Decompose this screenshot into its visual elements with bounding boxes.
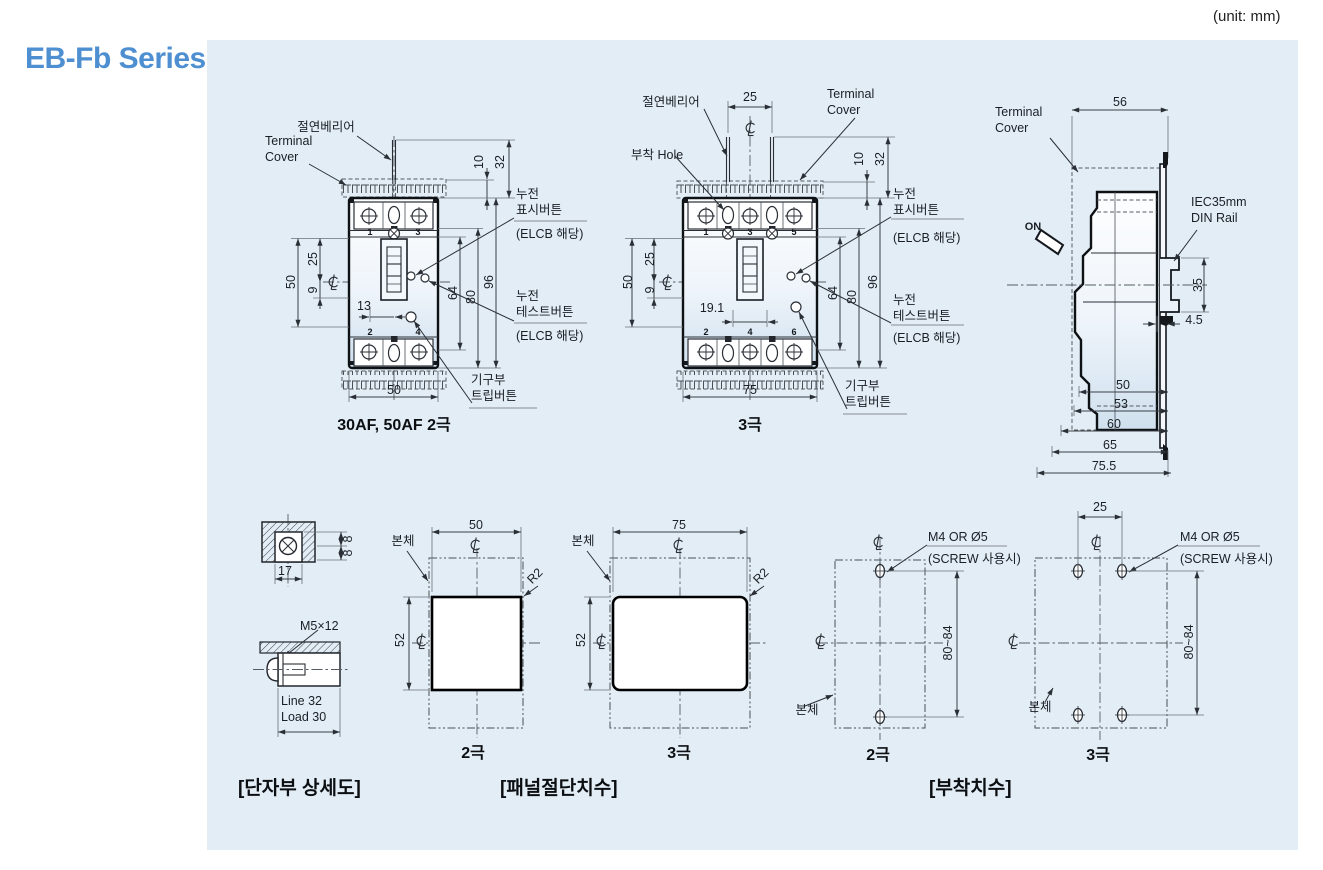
dim-label: 8: [340, 536, 356, 543]
dim-label: 80: [844, 290, 860, 304]
dim-label: 10: [851, 152, 867, 166]
dim-label: 50: [1116, 377, 1130, 393]
dim-label: 56: [1113, 94, 1127, 110]
dim-label: 10: [471, 155, 487, 169]
leakage-indicator-label: 누전 표시버튼: [893, 186, 939, 218]
dim-label: 9: [642, 287, 658, 294]
page: EB-Fb Series (unit: mm): [0, 0, 1323, 870]
panel-cutout-3pole-drawing: [584, 527, 768, 738]
body-label: 본체: [1028, 699, 1051, 715]
dim-label: 32: [872, 152, 888, 166]
elcb-note: (ELCB 해당): [516, 226, 583, 242]
elcb-note: (ELCB 해당): [893, 230, 960, 246]
body-label: 본체: [795, 702, 818, 718]
unit-label: (unit: mm): [1213, 8, 1281, 25]
terminal-cover-label: Terminal Cover: [265, 133, 312, 165]
dim-label: 80~84: [1181, 624, 1197, 659]
dim-label: 50: [283, 275, 299, 289]
pole-number: 5: [791, 227, 796, 237]
dim-label: 64: [445, 286, 461, 300]
din-rail-label: IEC35mm DIN Rail: [1191, 194, 1247, 226]
caption-mounting-3pole: 3극: [1086, 746, 1110, 766]
dim-label: 50: [469, 517, 483, 533]
trip-button-label: 기구부 트립버튼: [471, 372, 517, 404]
pole-number: 3: [747, 227, 752, 237]
screw-note-label: (SCREW 사용시): [928, 551, 1021, 567]
caption-3pole-front: 3극: [738, 416, 762, 436]
dim-label: 4.5: [1185, 312, 1202, 328]
screw-note-label: (SCREW 사용시): [1180, 551, 1273, 567]
front-view-2pole-drawing: [291, 136, 587, 408]
dim-label: 64: [825, 286, 841, 300]
dim-label: 80~84: [940, 625, 956, 660]
elcb-note: (ELCB 해당): [893, 330, 960, 346]
dim-label: 25: [305, 252, 321, 266]
dim-label: 13: [357, 298, 371, 314]
dim-label: 25: [743, 89, 757, 105]
pole-number: 2: [703, 327, 708, 337]
dim-label: 50: [620, 275, 636, 289]
terminal-cover-label: Terminal Cover: [995, 104, 1042, 136]
page-title: EB-Fb Series: [25, 42, 206, 76]
leakage-test-label: 누전 테스트버튼: [893, 292, 951, 324]
dim-label: 17: [278, 563, 292, 579]
leakage-indicator-label: 누전 표시버튼: [516, 186, 562, 218]
dim-label: 25: [1093, 499, 1107, 515]
dim-label: 96: [865, 275, 881, 289]
dim-label: 53: [1114, 396, 1128, 412]
dim-label: 32: [492, 155, 508, 169]
on-label: ON: [1025, 220, 1042, 234]
screw-spec-label: M4 OR Ø5: [928, 529, 988, 545]
dim-label: 60: [1107, 416, 1121, 432]
caption-mounting-2pole: 2극: [866, 746, 890, 766]
section-caption-terminal-detail: [단자부 상세도]: [238, 777, 361, 801]
body-label: 본체: [391, 533, 414, 549]
panel-cutout-2pole-drawing: [403, 527, 540, 738]
trip-button-label: 기구부 트립버튼: [845, 378, 891, 410]
dim-label: 8: [340, 550, 356, 557]
wire-capacity-label: Line 32 Load 30: [281, 693, 326, 725]
pole-number: 1: [703, 227, 708, 237]
drawing-panel: 절연베리어 Terminal Cover 10 32 누전 표시버튼 (ELCB…: [207, 40, 1298, 850]
terminal-cover-label: Terminal Cover: [827, 86, 874, 118]
leakage-test-label: 누전 테스트버튼: [516, 288, 574, 320]
pole-number: 2: [367, 327, 372, 337]
dim-label: 35: [1190, 278, 1206, 292]
screw-spec-label: M5×12: [300, 618, 339, 634]
dim-label: 25: [642, 252, 658, 266]
screw-spec-label: M4 OR Ø5: [1180, 529, 1240, 545]
mounting-hole-label: 부착 Hole: [631, 147, 683, 163]
section-caption-panel-cutout: [패널절단치수]: [500, 777, 618, 801]
dim-label: 75: [672, 517, 686, 533]
dim-label: 52: [392, 633, 408, 647]
caption-2pole-front: 30AF, 50AF 2극: [337, 416, 450, 436]
dim-label: 75: [743, 382, 757, 398]
pole-number: 4: [747, 327, 752, 337]
dim-label: 52: [573, 633, 589, 647]
drawing-linework: [207, 40, 1298, 850]
pole-number: 3: [415, 227, 420, 237]
pole-number: 6: [791, 327, 796, 337]
dim-label: 65: [1103, 437, 1117, 453]
dim-label: 96: [481, 275, 497, 289]
dim-label: 19.1: [700, 300, 724, 316]
dim-label: 75.5: [1092, 458, 1116, 474]
elcb-note: (ELCB 해당): [516, 328, 583, 344]
pole-number: 4: [415, 327, 420, 337]
dim-label: 50: [387, 382, 401, 398]
body-label: 본체: [571, 533, 594, 549]
dim-label: 80: [463, 290, 479, 304]
pole-number: 1: [367, 227, 372, 237]
dim-label: 9: [305, 287, 321, 294]
caption-cutout-3pole: 3극: [667, 744, 691, 764]
section-caption-mounting: [부착치수]: [929, 777, 1012, 801]
caption-cutout-2pole: 2극: [461, 744, 485, 764]
insulation-barrier-label: 절연베리어: [642, 94, 700, 110]
